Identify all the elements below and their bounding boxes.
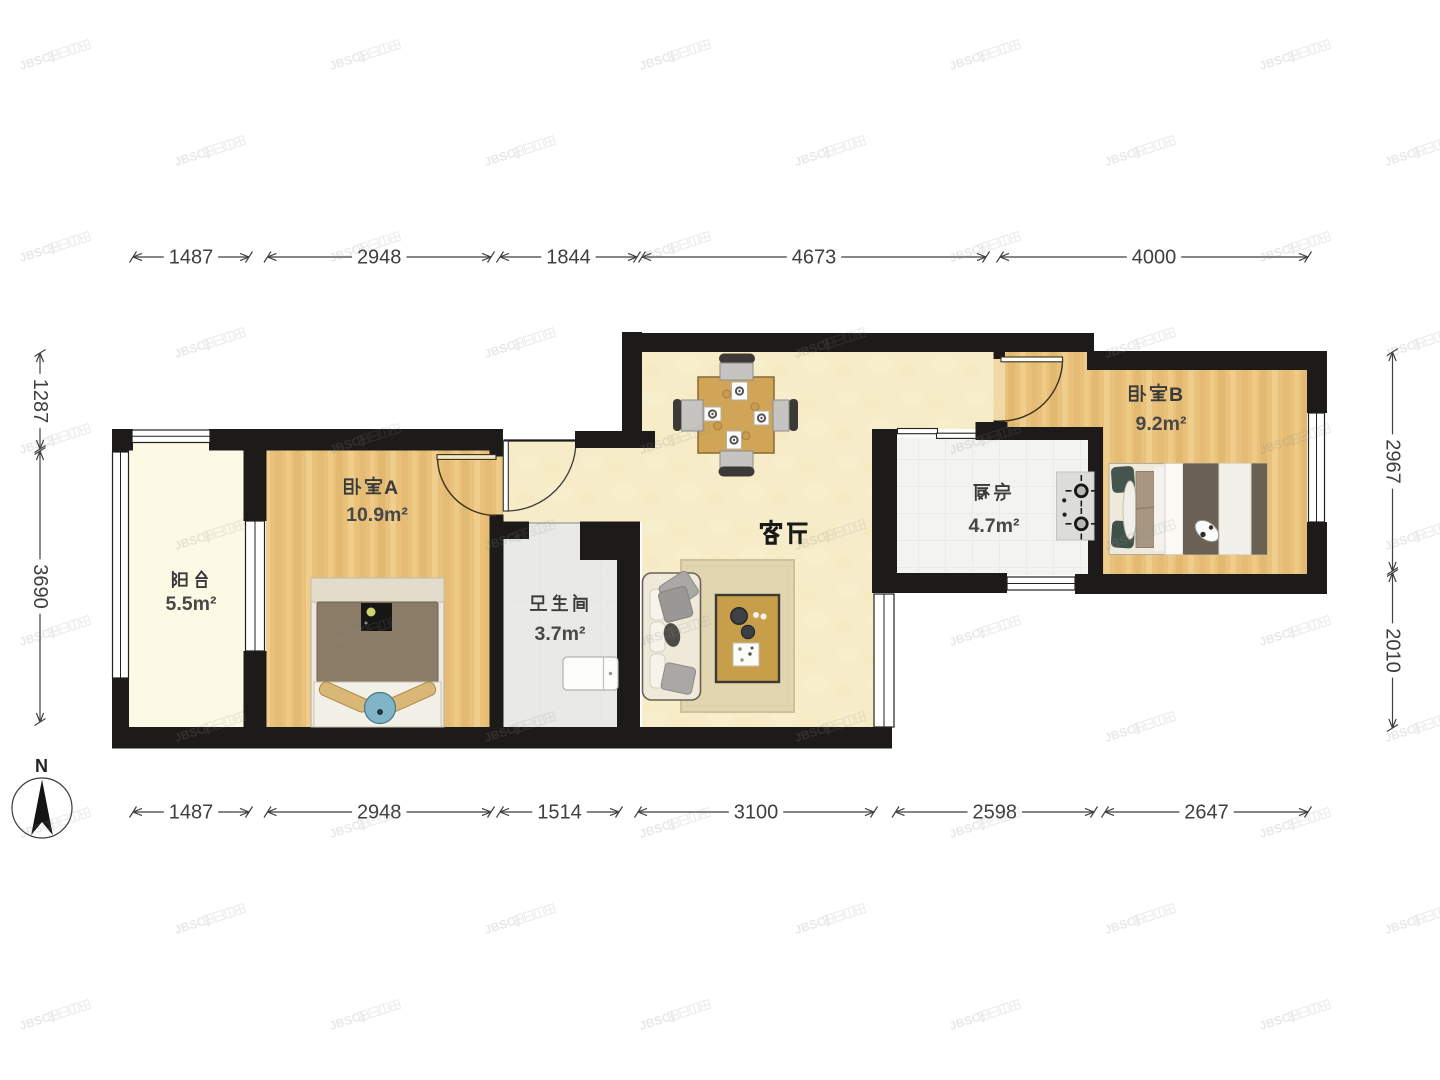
svg-text:JBSC|: JBSC| bbox=[328, 49, 366, 73]
svg-text:JBSC|: JBSC| bbox=[948, 1009, 986, 1033]
svg-text:JBSC|: JBSC| bbox=[638, 817, 676, 841]
svg-text:JBSC|: JBSC| bbox=[1258, 1009, 1296, 1033]
svg-text:JBSC|: JBSC| bbox=[1103, 913, 1141, 937]
svg-text:JBSC|: JBSC| bbox=[948, 625, 986, 649]
svg-text:JBSC|: JBSC| bbox=[328, 1009, 366, 1033]
svg-text:9.2m²: 9.2m² bbox=[1136, 413, 1187, 435]
svg-text:JBSC|: JBSC| bbox=[1383, 337, 1421, 361]
svg-text:JBSC|: JBSC| bbox=[1383, 529, 1421, 553]
svg-text:JBSC|: JBSC| bbox=[1258, 49, 1296, 73]
svg-text:JBSC|: JBSC| bbox=[1103, 721, 1141, 745]
svg-text:A: A bbox=[384, 477, 398, 499]
svg-text:JBSC|: JBSC| bbox=[1383, 145, 1421, 169]
svg-text:JBSC|: JBSC| bbox=[483, 913, 521, 937]
svg-text:JBSC|: JBSC| bbox=[638, 49, 676, 73]
svg-text:4673: 4673 bbox=[792, 247, 837, 269]
svg-text:JBSC|: JBSC| bbox=[948, 241, 986, 265]
svg-text:2010: 2010 bbox=[1382, 628, 1404, 673]
svg-text:5.5m²: 5.5m² bbox=[166, 593, 217, 615]
svg-text:JBSC|: JBSC| bbox=[638, 241, 676, 265]
svg-text:1287: 1287 bbox=[29, 379, 51, 424]
svg-text:JBSC|: JBSC| bbox=[18, 1009, 56, 1033]
svg-text:3100: 3100 bbox=[734, 802, 779, 824]
svg-text:JBSC|: JBSC| bbox=[638, 1009, 676, 1033]
svg-text:JBSC|: JBSC| bbox=[1258, 241, 1296, 265]
svg-text:4000: 4000 bbox=[1132, 247, 1177, 269]
svg-text:JBSC|: JBSC| bbox=[328, 817, 366, 841]
svg-text:2647: 2647 bbox=[1184, 802, 1229, 824]
svg-text:10.9m²: 10.9m² bbox=[346, 504, 408, 526]
svg-text:JBSC|: JBSC| bbox=[1383, 721, 1421, 745]
svg-text:JBSC|: JBSC| bbox=[793, 145, 831, 169]
svg-text:JBSC|: JBSC| bbox=[483, 145, 521, 169]
svg-text:1514: 1514 bbox=[537, 802, 582, 824]
svg-text:3690: 3690 bbox=[29, 564, 51, 609]
svg-text:JBSC|: JBSC| bbox=[1383, 913, 1421, 937]
svg-text:JBSC|: JBSC| bbox=[1258, 625, 1296, 649]
svg-text:JBSC|: JBSC| bbox=[793, 913, 831, 937]
svg-text:JBSC|: JBSC| bbox=[948, 49, 986, 73]
svg-text:JBSC|: JBSC| bbox=[173, 145, 211, 169]
svg-text:JBSC|: JBSC| bbox=[1258, 817, 1296, 841]
svg-text:JBSC|: JBSC| bbox=[483, 337, 521, 361]
svg-text:JBSC|: JBSC| bbox=[948, 817, 986, 841]
svg-text:3.7m²: 3.7m² bbox=[535, 623, 586, 645]
svg-text:JBSC|: JBSC| bbox=[18, 625, 56, 649]
svg-text:1487: 1487 bbox=[169, 802, 214, 824]
svg-text:JBSC|: JBSC| bbox=[18, 241, 56, 265]
svg-text:B: B bbox=[1169, 384, 1183, 406]
svg-text:1487: 1487 bbox=[169, 247, 214, 269]
svg-text:2967: 2967 bbox=[1382, 439, 1404, 484]
svg-text:JBSC|: JBSC| bbox=[18, 49, 56, 73]
svg-text:JBSC|: JBSC| bbox=[173, 913, 211, 937]
svg-text:N: N bbox=[35, 756, 48, 776]
svg-text:4.7m²: 4.7m² bbox=[969, 515, 1020, 537]
svg-text:JBSC|: JBSC| bbox=[1103, 145, 1141, 169]
svg-text:1844: 1844 bbox=[546, 247, 591, 269]
svg-text:JBSC|: JBSC| bbox=[173, 337, 211, 361]
